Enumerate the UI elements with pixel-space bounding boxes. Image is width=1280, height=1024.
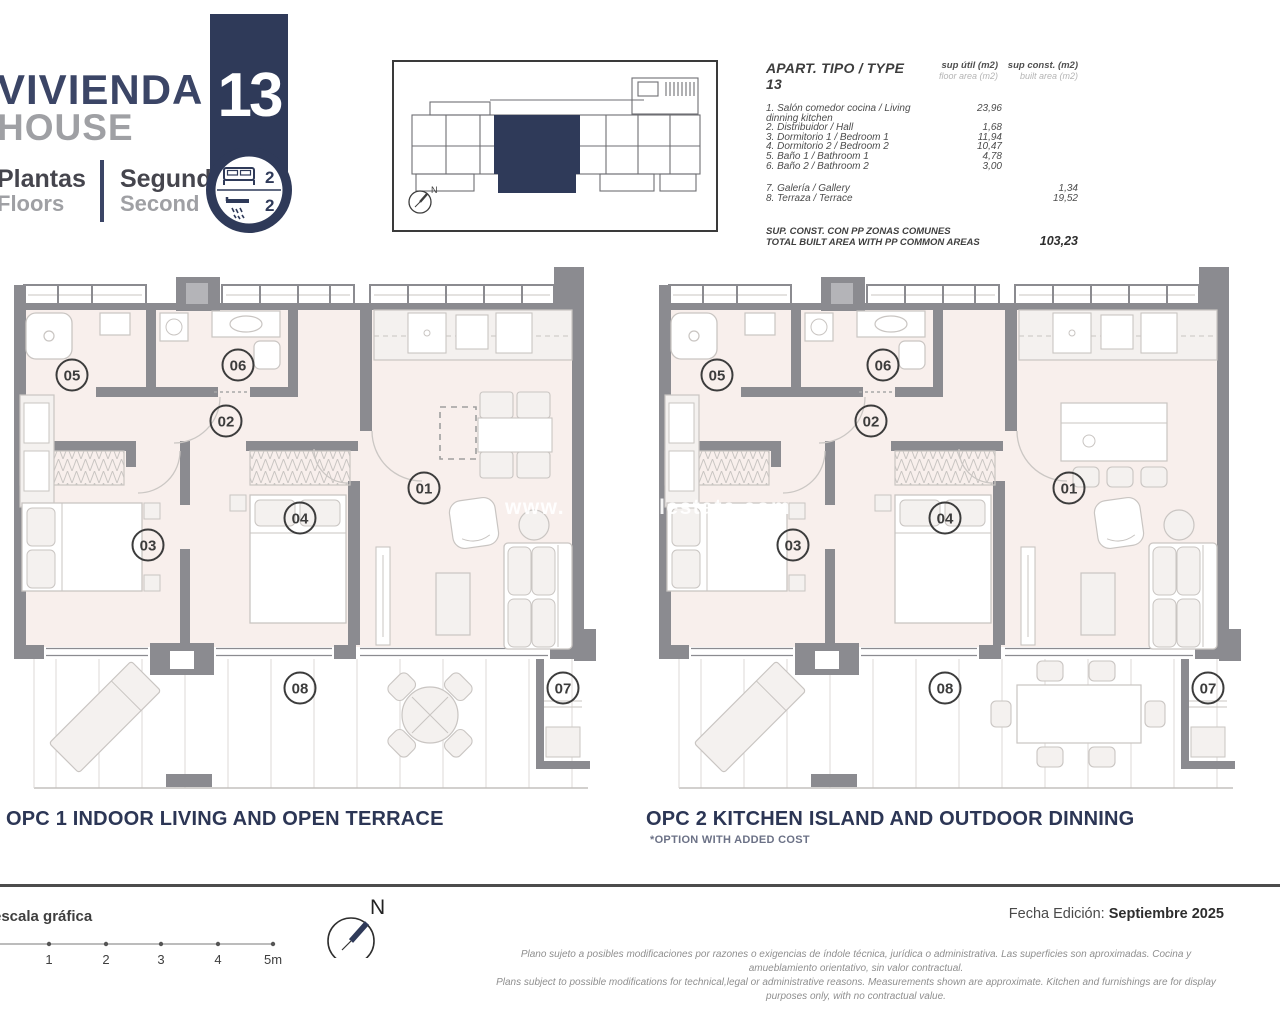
svg-text:07: 07 bbox=[1200, 681, 1217, 698]
keyplan-north-label: N bbox=[431, 185, 438, 195]
svg-text:1: 1 bbox=[45, 952, 52, 967]
total-built-area-value: 103,23 bbox=[1002, 234, 1078, 248]
footer-divider bbox=[0, 884, 1280, 887]
bathrooms-count: 2 bbox=[265, 196, 274, 215]
opc2-note: *OPTION WITH ADDED COST bbox=[650, 834, 810, 846]
area-row: 1. Salón comedor cocina / Living dinning… bbox=[766, 104, 1078, 123]
watermark: www. realestate.com bbox=[505, 496, 791, 520]
svg-text:N: N bbox=[370, 896, 385, 919]
svg-text:01: 01 bbox=[1061, 481, 1078, 498]
area-total: SUP. CONST. CON PP ZONAS COMUNES TOTAL B… bbox=[766, 227, 1078, 248]
svg-text:03: 03 bbox=[140, 538, 157, 555]
opc1-caption: OPC 1 INDOOR LIVING AND OPEN TERRACE bbox=[6, 808, 444, 831]
bedrooms-count: 2 bbox=[265, 168, 274, 187]
page-title-en: HOUSE bbox=[0, 110, 203, 146]
svg-text:2: 2 bbox=[102, 952, 109, 967]
edition-date-value: Septiembre 2025 bbox=[1109, 906, 1224, 922]
col-built-area: sup const. (m2) bbox=[998, 60, 1078, 71]
svg-text:07: 07 bbox=[555, 681, 572, 698]
unit-number: 13 bbox=[210, 60, 288, 131]
floors-label-en: Floors bbox=[0, 192, 86, 216]
svg-text:5m: 5m bbox=[264, 952, 282, 967]
svg-text:08: 08 bbox=[937, 681, 954, 698]
edition-date: Fecha Edición: Septiembre 2025 bbox=[1009, 906, 1224, 922]
svg-text:04: 04 bbox=[937, 511, 954, 528]
svg-text:4: 4 bbox=[214, 952, 221, 967]
svg-text:02: 02 bbox=[218, 414, 235, 431]
title-block: VIVIENDA HOUSE bbox=[0, 70, 203, 146]
floor-info: Plantas Floors Segunda Second bbox=[0, 160, 226, 222]
area-table-title: APART. TIPO / TYPE 13 bbox=[766, 60, 922, 92]
svg-text:03: 03 bbox=[785, 538, 802, 555]
area-rows: 1. Salón comedor cocina / Living dinning… bbox=[766, 104, 1078, 203]
floorplan-sheet: VIVIENDA HOUSE Plantas Floors Segunda Se… bbox=[0, 0, 1280, 1024]
svg-text:3: 3 bbox=[157, 952, 164, 967]
svg-text:04: 04 bbox=[292, 511, 309, 528]
divider bbox=[100, 160, 104, 222]
floor-plan-opc2: 0102030405060708 bbox=[645, 255, 1245, 800]
svg-text:06: 06 bbox=[875, 358, 892, 375]
svg-text:01: 01 bbox=[416, 481, 433, 498]
svg-text:08: 08 bbox=[292, 681, 309, 698]
area-row: 8. Terraza / Terrace19,52 bbox=[766, 194, 1078, 204]
key-plan: N bbox=[392, 60, 718, 232]
opc2-caption: OPC 2 KITCHEN ISLAND AND OUTDOOR DINNING bbox=[646, 808, 1134, 831]
svg-text:02: 02 bbox=[863, 414, 880, 431]
col-floor-area: sup útil (m2) bbox=[922, 60, 998, 71]
legal-disclaimer: Plano sujeto a posibles modificaciones p… bbox=[486, 948, 1226, 1004]
svg-text:05: 05 bbox=[709, 368, 726, 385]
beds-baths-badge: 2 2 bbox=[205, 148, 293, 245]
floor-plan-opc1: 0102030405060708 bbox=[0, 255, 600, 800]
page-title-es: VIVIENDA bbox=[0, 70, 203, 110]
floors-label-es: Plantas bbox=[0, 166, 86, 192]
area-row: 6. Baño 2 / Bathroom 23,00 bbox=[766, 162, 1078, 172]
scale-bar: 12345m bbox=[0, 936, 310, 975]
svg-text:06: 06 bbox=[230, 358, 247, 375]
scale-label: escala gráfica bbox=[0, 908, 92, 925]
svg-text:05: 05 bbox=[64, 368, 81, 385]
north-compass-icon: N bbox=[320, 896, 400, 963]
area-table: APART. TIPO / TYPE 13 sup útil (m2) floo… bbox=[766, 60, 1078, 248]
